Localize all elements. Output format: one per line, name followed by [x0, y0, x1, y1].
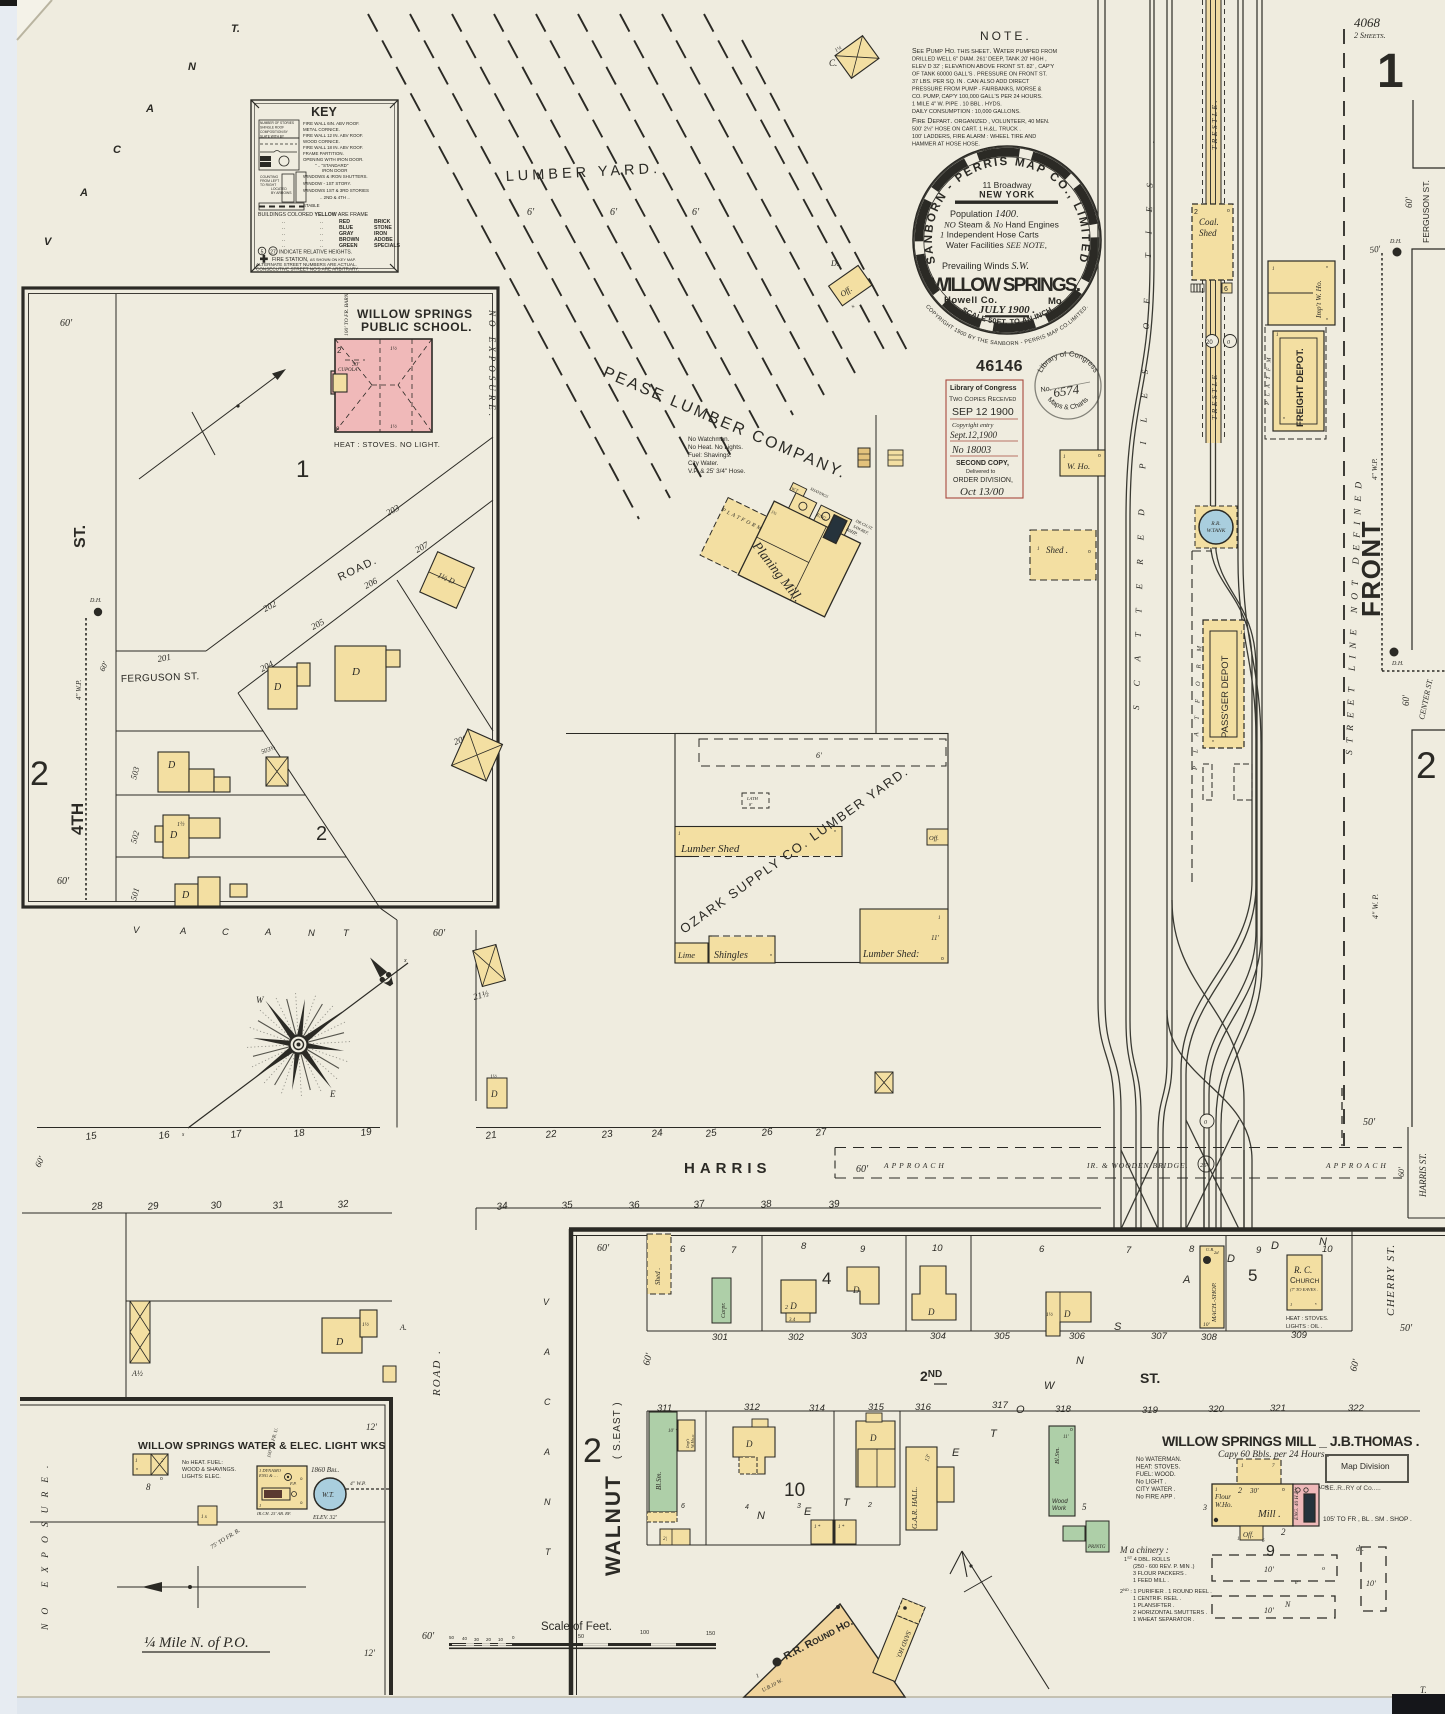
svg-text:1: 1 [1272, 267, 1275, 272]
svg-text:17: 17 [230, 1128, 243, 1141]
svg-text:KEY: KEY [311, 105, 337, 119]
svg-text:Wood: Wood [1052, 1499, 1068, 1505]
svg-text:NO EXPOSURE.: NO EXPOSURE. [41, 1457, 51, 1631]
svg-text:LIGHTS : OIL .: LIGHTS : OIL . [1286, 1324, 1323, 1330]
svg-text:1: 1 [1377, 45, 1404, 98]
svg-text:50': 50' [1363, 1117, 1376, 1128]
svg-text:11': 11' [931, 934, 939, 942]
svg-text:PUBLIC SCHOOL.: PUBLIC SCHOOL. [361, 320, 472, 334]
svg-text:No FIRE APP .: No FIRE APP . [1136, 1495, 1176, 1501]
svg-text:50': 50' [1400, 1323, 1413, 1334]
svg-text:FUEL: WOOD.: FUEL: WOOD. [1136, 1472, 1176, 1478]
svg-text:7: 7 [731, 1245, 737, 1256]
svg-text:1 MILE 4" W. PIPE . 10 BBL . H: 1 MILE 4" W. PIPE . 10 BBL . HYDS. [912, 102, 1002, 108]
svg-text:28: 28 [90, 1200, 104, 1213]
svg-text:30: 30 [210, 1199, 223, 1212]
svg-text:1 PLANSIFTER .: 1 PLANSIFTER . [1133, 1603, 1175, 1609]
svg-text:6': 6' [816, 751, 822, 760]
svg-text:TWO COPIES RECEIVED: TWO COPIES RECEIVED [949, 396, 1016, 403]
svg-text:Prevailing Winds S.W.: Prevailing Winds S.W. [942, 261, 1029, 272]
svg-text:R. C.: R. C. [1293, 1265, 1312, 1275]
svg-text:1 *: 1 * [814, 1525, 821, 1530]
svg-text:WINDOWS & IRON SHUTTERS.: WINDOWS & IRON SHUTTERS. [303, 174, 368, 179]
svg-text:ENG. 40 H.P.: ENG. 40 H.P. [1293, 1490, 1300, 1521]
svg-text:NUMBER OF STORIES: NUMBER OF STORIES [260, 121, 294, 125]
svg-text:Work: Work [1052, 1506, 1067, 1512]
svg-text:G.A.R. HALL.: G.A.R. HALL. [910, 1487, 919, 1529]
svg-text:Off.: Off. [1243, 1531, 1254, 1539]
svg-text:31: 31 [272, 1200, 285, 1212]
svg-text:T.: T. [1420, 1685, 1427, 1695]
svg-text:o: o [1227, 208, 1230, 214]
svg-text:36: 36 [628, 1199, 641, 1212]
svg-text:322: 322 [1348, 1403, 1365, 1414]
svg-text:d .: d . [1356, 1544, 1364, 1553]
svg-text:307: 307 [1151, 1331, 1168, 1342]
svg-text:WILLOW SPRINGS WATER & ELEC. L: WILLOW SPRINGS WATER & ELEC. LIGHT WKS . [138, 1440, 392, 1452]
svg-text:PASS'GER DEPOT: PASS'GER DEPOT [1220, 655, 1231, 738]
svg-text:A½: A½ [131, 1369, 143, 1378]
svg-text:150: 150 [706, 1631, 715, 1637]
svg-text:1: 1 [1294, 1486, 1296, 1491]
svg-text:Mo.: Mo. [1048, 296, 1064, 307]
svg-text:27: 27 [270, 250, 276, 256]
svg-text:ENG & …: ENG & … [258, 1473, 278, 1478]
svg-text:3: 3 [797, 1503, 801, 1510]
svg-text:APPROACH: APPROACH [883, 1161, 947, 1170]
svg-text:320: 320 [1208, 1404, 1225, 1415]
svg-text:6': 6' [692, 207, 700, 218]
svg-text:39: 39 [828, 1198, 841, 1211]
svg-text:Shed .: Shed . [654, 1268, 662, 1285]
svg-text:(250 - 600 REV. P. MIN .): (250 - 600 REV. P. MIN .) [1133, 1564, 1195, 1570]
svg-text:318: 318 [1055, 1404, 1072, 1415]
svg-text:COMPOSITION BY: COMPOSITION BY [260, 130, 289, 134]
svg-text:FRONT: FRONT [1356, 520, 1386, 617]
svg-text:Lumber Shed: Lumber Shed [680, 843, 740, 855]
svg-text:Fuel: Shavings.: Fuel: Shavings. [688, 452, 732, 459]
svg-text:16: 16 [158, 1129, 171, 1142]
svg-text:1: 1 [1290, 1302, 1292, 1307]
svg-text:10' *: 10' * [668, 1429, 678, 1434]
svg-text:No 18003: No 18003 [951, 445, 991, 456]
svg-text:JULY 1900 .: JULY 1900 . [978, 304, 1035, 316]
svg-text:A.: A. [399, 1323, 407, 1332]
svg-text:N: N [544, 1497, 551, 1507]
svg-text:Carpr.: Carpr. [721, 1302, 727, 1318]
svg-text:D.: D. [830, 259, 839, 268]
svg-text:GREEN: GREEN [339, 243, 358, 249]
svg-text:26: 26 [760, 1126, 774, 1139]
svg-text:309: 309 [1291, 1330, 1308, 1341]
svg-text:25: 25 [704, 1127, 718, 1140]
svg-text:60': 60' [1404, 196, 1414, 208]
svg-text:10': 10' [1264, 1565, 1274, 1574]
svg-text:D: D [181, 890, 190, 901]
svg-text:1: 1 [1037, 547, 1040, 552]
svg-text:D: D [490, 1089, 498, 1099]
svg-text:1: 1 [259, 1503, 261, 1508]
svg-text:V.P. & 25' 3/4" Hose.: V.P. & 25' 3/4" Hose. [688, 468, 746, 475]
svg-text:37 LBS. PER SQ. IN . CAN ALSO: 37 LBS. PER SQ. IN . CAN ALSO ADD DIRECT [912, 79, 1030, 85]
svg-text:N: N [1319, 1236, 1327, 1248]
svg-text:o: o [1282, 1487, 1285, 1493]
svg-text:60': 60' [433, 928, 446, 939]
svg-text:*: * [136, 1468, 138, 1474]
svg-text:SEP 12 1900: SEP 12 1900 [952, 406, 1014, 418]
svg-text:CUPOLA: CUPOLA [338, 368, 358, 373]
svg-text:1: 1 [1241, 1464, 1244, 1469]
svg-text:1½: 1½ [177, 821, 185, 828]
svg-text:D: D [335, 1337, 344, 1348]
svg-text:2: 2 [1194, 209, 1198, 216]
svg-text:DAILY CONSUMPTION : 10,000 GAL: DAILY CONSUMPTION : 10,000 GALLONS. [912, 109, 1021, 115]
svg-text:30': 30' [351, 362, 360, 368]
svg-text:8: 8 [801, 1241, 807, 1252]
svg-text:3: 3 [1202, 1503, 1207, 1512]
svg-text:City Water.: City Water. [688, 460, 719, 467]
svg-text:7: 7 [1126, 1245, 1132, 1256]
svg-text:26': 26' [1200, 1162, 1209, 1169]
svg-text:CONSECUTIVE STREET NO'S ARE: CONSECUTIVE STREET NO'S ARE ARBITRARY. [256, 267, 359, 272]
svg-text:NOTE.: NOTE. [980, 29, 1032, 43]
svg-text:1½: 1½ [1046, 1311, 1053, 1318]
svg-text:IRON DOOR: IRON DOOR [322, 168, 347, 173]
svg-text:CHURCH: CHURCH [1290, 1276, 1320, 1285]
svg-text:Map Division: Map Division [1341, 1461, 1390, 1471]
svg-text:100' TO FR. BARN: 100' TO FR. BARN [344, 293, 350, 336]
svg-text:S: S [1114, 1321, 1122, 1333]
svg-text:Bl.Sm.: Bl.Sm. [1054, 1447, 1061, 1464]
svg-text:4" W. P.: 4" W. P. [1371, 894, 1380, 919]
svg-text:W.T.: W.T. [322, 1491, 334, 1499]
svg-text:x: x [403, 958, 407, 964]
svg-text:100: 100 [640, 1630, 649, 1636]
svg-text:A: A [543, 1347, 550, 1357]
svg-text:60': 60' [60, 318, 73, 329]
svg-text:F.P.: F.P. [289, 1481, 297, 1486]
svg-text:MACH.-SHOP.: MACH.-SHOP. [1211, 1282, 1218, 1323]
svg-text:No HEAT. FUEL:: No HEAT. FUEL: [182, 1460, 223, 1466]
svg-text:4: 4 [745, 1504, 749, 1511]
svg-text:100' LADDERS, FIRE ALARM : WHE: 100' LADDERS, FIRE ALARM : WHEEL TIRE AN… [912, 134, 1036, 140]
svg-text:40: 40 [462, 1636, 468, 1641]
svg-text:Sept.12,1900: Sept.12,1900 [950, 430, 997, 440]
svg-text:Lumber Shed:: Lumber Shed: [862, 949, 919, 960]
svg-text:SHINGLE ROOF: SHINGLE ROOF [260, 126, 284, 130]
svg-text:6': 6' [527, 207, 535, 218]
svg-text:2 SHEETS.: 2 SHEETS. [1354, 31, 1386, 40]
svg-text:2: 2 [337, 346, 342, 355]
svg-text:24: 24 [650, 1127, 664, 1140]
svg-text:TRESTLE.: TRESTLE. [1210, 98, 1219, 150]
svg-text:1 FEED MILL .: 1 FEED MILL . [1133, 1578, 1169, 1584]
svg-text:9: 9 [860, 1244, 866, 1255]
svg-text:60': 60' [1397, 1167, 1406, 1177]
svg-text:2: 2 [1238, 1486, 1242, 1495]
svg-text:WINDOWS 1ST & 3RD STORIES: WINDOWS 1ST & 3RD STORIES [303, 188, 369, 193]
svg-text:2|: 2| [663, 1537, 667, 1542]
svg-text:o: o [941, 956, 944, 962]
svg-text:4" W.P.: 4" W.P. [75, 679, 83, 700]
svg-text:105' TO FR , BL . SM . SHOP .: 105' TO FR , BL . SM . SHOP . [1323, 1516, 1412, 1523]
svg-text:ROAD .: ROAD . [431, 1349, 443, 1397]
svg-text:Shed .: Shed . [1046, 545, 1068, 555]
svg-text:Population 1400.: Population 1400. [950, 209, 1019, 220]
svg-text:¼ Mile N. of P.O.: ¼ Mile N. of P.O. [144, 1635, 249, 1651]
svg-text:SEE PUMP HO. THIS SHEET. WAT: SEE PUMP HO. THIS SHEET. WATER PUMPED FR… [912, 48, 1057, 55]
svg-text:50: 50 [578, 1634, 584, 1640]
svg-text:METAL CORNICE.: METAL CORNICE. [303, 127, 340, 132]
svg-text:10: 10 [932, 1243, 943, 1254]
svg-text:D: D [1227, 1253, 1235, 1265]
svg-text:C: C [113, 144, 122, 156]
svg-text:Water Facilities SEE NOTE,: Water Facilities SEE NOTE, [946, 240, 1047, 250]
svg-text:3.4: 3.4 [789, 1318, 796, 1323]
svg-text:*: * [1212, 740, 1214, 746]
svg-text:4" W.P.: 4" W.P. [350, 1480, 366, 1487]
svg-text:23: 23 [600, 1128, 614, 1141]
svg-text:ST.: ST. [1140, 1370, 1160, 1386]
svg-text:o: o [1098, 453, 1101, 459]
svg-text:(7' TO EAVES .: (7' TO EAVES . [1290, 1287, 1318, 1292]
svg-text:FREIGHT DEPOT.: FREIGHT DEPOT. [1295, 348, 1306, 427]
svg-text:301: 301 [712, 1332, 728, 1343]
svg-text:29: 29 [146, 1200, 160, 1213]
svg-text:312: 312 [744, 1402, 761, 1413]
svg-text:0: 0 [1227, 340, 1230, 346]
svg-text:1: 1 [1240, 631, 1243, 636]
svg-text:1: 1 [1276, 333, 1279, 338]
svg-text:6: 6 [1039, 1244, 1045, 1255]
svg-text:5: 5 [1248, 1266, 1257, 1285]
svg-text:D.H.: D.H. [1391, 661, 1404, 667]
svg-text:WOOD CORNICE.: WOOD CORNICE. [303, 139, 340, 144]
svg-text:8: 8 [1189, 1244, 1195, 1255]
svg-text:W: W [1044, 1380, 1056, 1392]
svg-text:D: D [869, 1433, 877, 1443]
svg-text:35: 35 [561, 1199, 574, 1212]
svg-text:1½: 1½ [390, 423, 397, 430]
svg-text:1½: 1½ [390, 345, 397, 352]
svg-text:WOOD & SHAVINGS.: WOOD & SHAVINGS. [182, 1467, 236, 1473]
svg-text:Copyright entry: Copyright entry [952, 422, 993, 429]
svg-text:STABLE: STABLE [303, 203, 320, 208]
svg-text:Off.: Off. [929, 835, 939, 842]
svg-text:1 WHEAT SEPARATOR .: 1 WHEAT SEPARATOR . [1133, 1617, 1195, 1623]
svg-text:FIRE WALL 12 IN. ABV ROOF.: FIRE WALL 12 IN. ABV ROOF. [303, 133, 363, 138]
svg-text:19: 19 [360, 1126, 373, 1139]
svg-text:1½: 1½ [490, 1073, 497, 1080]
svg-text:D: D [351, 666, 360, 678]
svg-text:*: * [1315, 1302, 1317, 1307]
svg-text:27: 27 [814, 1126, 828, 1139]
svg-text:21: 21 [484, 1130, 498, 1143]
svg-text:IR. & WOODEN BRIDGE.: IR. & WOODEN BRIDGE. [1086, 1161, 1188, 1170]
svg-text:SPECIALS: SPECIALS [374, 243, 400, 249]
svg-text:N: N [308, 928, 315, 939]
svg-text:2: 2 [316, 823, 327, 845]
svg-text:Oct 13/00: Oct 13/00 [960, 486, 1004, 498]
svg-text:6: 6 [1224, 286, 1228, 293]
svg-text:22: 22 [544, 1128, 558, 1141]
svg-text:6: 6 [680, 1244, 686, 1255]
svg-text:HARRIS ST.: HARRIS ST. [1418, 1153, 1428, 1198]
svg-text:C.: C. [829, 58, 837, 68]
svg-text:SECOND COPY,: SECOND COPY, [956, 460, 1009, 467]
svg-text:N: N [757, 1510, 765, 1522]
svg-text:2: 2 [583, 1432, 602, 1470]
svg-text:10: 10 [498, 1637, 504, 1642]
svg-text:W.Ho.o: W.Ho.o [690, 1434, 695, 1448]
svg-text:Delivered to: Delivered to [966, 469, 995, 475]
svg-text:1 Independent Hose Carts: 1 Independent Hose Carts [940, 230, 1039, 240]
svg-text:ST.: ST. [72, 525, 89, 548]
svg-text:CITY WATER .: CITY WATER . [1136, 1487, 1176, 1493]
svg-text:Imp't W. Ho.: Imp't W. Ho. [1314, 280, 1323, 319]
svg-text:o: o [1322, 1566, 1325, 1572]
svg-text:1: 1 [1237, 1537, 1240, 1542]
svg-text:46146: 46146 [976, 358, 1023, 375]
svg-text:38: 38 [760, 1198, 773, 1211]
svg-text:D.H.: D.H. [1389, 239, 1402, 245]
svg-text:E: E [952, 1447, 960, 1459]
svg-text:315: 315 [868, 1402, 885, 1413]
svg-text:C: C [544, 1397, 551, 1407]
svg-text:Shingles: Shingles [714, 950, 748, 961]
svg-text:APPROACH: APPROACH [1325, 1161, 1389, 1170]
svg-text:1 *: 1 * [838, 1525, 845, 1530]
svg-text:9: 9 [1266, 1543, 1275, 1560]
svg-text:R.R.: R.R. [1210, 521, 1220, 527]
svg-text:306: 306 [1069, 1331, 1086, 1342]
svg-text:PRESSURE FROM PUMP - FAIRBANKS: PRESSURE FROM PUMP - FAIRBANKS, MORSE & [912, 87, 1042, 93]
svg-text:o: o [1088, 549, 1091, 555]
svg-text:WILLOW SPRINGS: WILLOW SPRINGS [357, 307, 473, 321]
svg-text:30': 30' [1249, 1487, 1259, 1495]
svg-text:12': 12' [366, 1422, 378, 1432]
svg-text:60': 60' [57, 876, 70, 887]
svg-text:A: A [179, 926, 186, 937]
svg-text:10: 10 [784, 1480, 805, 1501]
svg-text:1: 1 [1063, 455, 1066, 460]
svg-text:2: 2 [867, 1502, 872, 1509]
svg-text:2ND : 1 PURIFIER . 1 ROUND R: 2ND : 1 PURIFIER . 1 ROUND REEL . [1120, 1587, 1212, 1595]
svg-text:305: 305 [994, 1331, 1011, 1342]
svg-text:WINDOW - 1ST STORY.: WINDOW - 1ST STORY. [303, 181, 351, 186]
svg-text:D: D [167, 760, 176, 771]
svg-text:W.TANK: W.TANK [1207, 528, 1226, 534]
svg-text:1½: 1½ [362, 1321, 369, 1328]
svg-text:ELEV D 32' ; ELEVATION ABOVE F: ELEV D 32' ; ELEVATION ABOVE FRONT ST. 8… [912, 64, 1055, 70]
svg-text:o: o [160, 1476, 163, 1482]
svg-text:o: o [1070, 1427, 1073, 1433]
svg-text:5: 5 [261, 250, 264, 256]
svg-text:1 CENTRIF. REEL .: 1 CENTRIF. REEL . [1133, 1596, 1182, 1602]
svg-text:FIRE DEPART. ORGANIZED , VOLUN: FIRE DEPART. ORGANIZED , VOLUNTEER, 40 M… [912, 118, 1050, 125]
svg-text:IR.CH. 25' AB. RF.: IR.CH. 25' AB. RF. [256, 1511, 291, 1516]
svg-text:2: 2 [30, 755, 49, 793]
svg-text:A: A [79, 187, 88, 199]
svg-text:1: 1 [135, 1459, 138, 1464]
svg-text:HARRIS: HARRIS [684, 1160, 772, 1177]
svg-text:O: O [1016, 1404, 1025, 1416]
svg-text:1 x: 1 x [201, 1515, 208, 1520]
svg-text:..: .. [320, 243, 323, 249]
svg-text:ELEV. 32': ELEV. 32' [312, 1515, 338, 1521]
svg-text:NO Steam & No Hand Engines: NO Steam & No Hand Engines [943, 220, 1059, 230]
svg-text:U.B.: U.B. [1206, 1247, 1214, 1252]
svg-text:E: E [329, 1089, 336, 1099]
svg-text:A: A [1182, 1274, 1190, 1286]
svg-text:60': 60' [597, 1243, 610, 1254]
svg-text:32: 32 [337, 1198, 350, 1211]
svg-text:WILLOW SPRINGS MILL _ J.B.THOM: WILLOW SPRINGS MILL _ J.B.THOMAS . [1162, 1433, 1420, 1449]
svg-text:11 Broadway: 11 Broadway [983, 180, 1033, 190]
svg-text:HEAT: STOVES.: HEAT: STOVES. [1136, 1465, 1180, 1471]
svg-text:4068: 4068 [1354, 15, 1381, 30]
svg-text:..: .. [282, 243, 285, 249]
svg-text:C: C [222, 927, 229, 938]
svg-text:A: A [145, 103, 154, 115]
svg-text:N: N [1076, 1355, 1084, 1367]
svg-text:FERGUSON ST.: FERGUSON ST. [1421, 180, 1431, 243]
svg-text:60': 60' [1401, 694, 1411, 706]
svg-text:8: 8 [146, 1482, 151, 1492]
svg-text:D: D [745, 1439, 753, 1449]
svg-text:30: 30 [474, 1637, 480, 1642]
svg-text:WALNUT: WALNUT [602, 1474, 625, 1576]
svg-text:PRINTG: PRINTG [1087, 1545, 1106, 1550]
svg-text:321: 321 [1270, 1403, 1286, 1414]
svg-text:37: 37 [693, 1198, 706, 1211]
svg-text:FRAME PARTITION.: FRAME PARTITION. [303, 151, 344, 156]
svg-text:SE..R..RY of Co.....: SE..R..RY of Co..... [1325, 1485, 1381, 1492]
svg-text:D: D [927, 1307, 935, 1317]
svg-text:HEAT : STOVES.: HEAT : STOVES. [1286, 1316, 1329, 1322]
svg-text:A: A [264, 927, 271, 938]
svg-text:LATH: LATH [746, 796, 759, 801]
svg-text:*: * [770, 954, 772, 960]
svg-text:HEAT : STOVES. NO LIGHT.: HEAT : STOVES. NO LIGHT. [334, 440, 440, 449]
svg-text:Library of Congress: Library of Congress [950, 385, 1017, 392]
svg-text:D: D [273, 682, 282, 693]
svg-text:WILLOW SPRINGS.: WILLOW SPRINGS. [931, 275, 1081, 296]
svg-text:BUILDINGS COLORED YELLOW ARE: BUILDINGS COLORED YELLOW ARE FRAME [258, 212, 369, 218]
svg-text:50: 50 [449, 1635, 455, 1640]
svg-text:Shed: Shed [1199, 228, 1217, 238]
svg-text:18: 18 [293, 1127, 306, 1140]
svg-text:NEW YORK: NEW YORK [979, 190, 1035, 200]
svg-text:1: 1 [938, 916, 941, 921]
svg-text:( S.EAST ): ( S.EAST ) [612, 1401, 623, 1459]
svg-text:2: 2 [1416, 745, 1437, 786]
svg-text:Flour: Flour [1214, 1493, 1231, 1501]
svg-text:FIRE WALL 18 IN. ABV ROOF.: FIRE WALL 18 IN. ABV ROOF. [303, 145, 363, 150]
svg-text:e: e [1295, 1580, 1298, 1586]
svg-text:20: 20 [1206, 340, 1213, 346]
svg-text:LIGHTS: ELEC.: LIGHTS: ELEC. [182, 1474, 221, 1480]
svg-text:6': 6' [610, 207, 618, 218]
svg-text:INDICATE RELATIVE HEIGHTS.: INDICATE RELATIVE HEIGHTS. [279, 250, 352, 256]
svg-text:N: N [1284, 1600, 1291, 1609]
svg-text:D: D [852, 1285, 860, 1295]
svg-text:A: A [543, 1447, 550, 1457]
svg-text:15: 15 [85, 1130, 98, 1143]
svg-text:4" W.P.: 4" W.P. [1370, 458, 1379, 480]
svg-text:20: 20 [486, 1637, 492, 1642]
svg-text:60': 60' [856, 1164, 869, 1175]
